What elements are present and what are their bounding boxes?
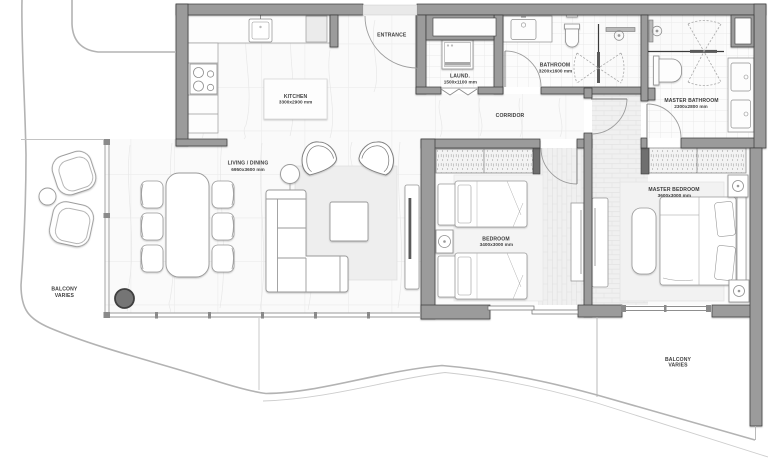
svg-text:6950x3600 mm: 6950x3600 mm (231, 167, 264, 172)
svg-text:BALCONY: BALCONY (51, 287, 78, 293)
svg-text:2300x2800 mm: 2300x2800 mm (674, 104, 707, 109)
svg-text:LIVING / DINING: LIVING / DINING (228, 160, 269, 166)
svg-text:VARIES: VARIES (668, 362, 688, 368)
svg-text:ENTRANCE: ENTRANCE (377, 33, 407, 39)
svg-text:3200x1600 mm: 3200x1600 mm (539, 69, 572, 74)
svg-text:3300x2900 mm: 3300x2900 mm (279, 100, 312, 105)
svg-text:CORRIDOR: CORRIDOR (496, 113, 525, 119)
svg-text:3400x3000 mm: 3400x3000 mm (480, 242, 513, 247)
svg-text:VARIES: VARIES (55, 293, 75, 299)
svg-text:1500x1100 mm: 1500x1100 mm (444, 80, 477, 85)
svg-text:3600x3000 mm: 3600x3000 mm (658, 193, 691, 198)
